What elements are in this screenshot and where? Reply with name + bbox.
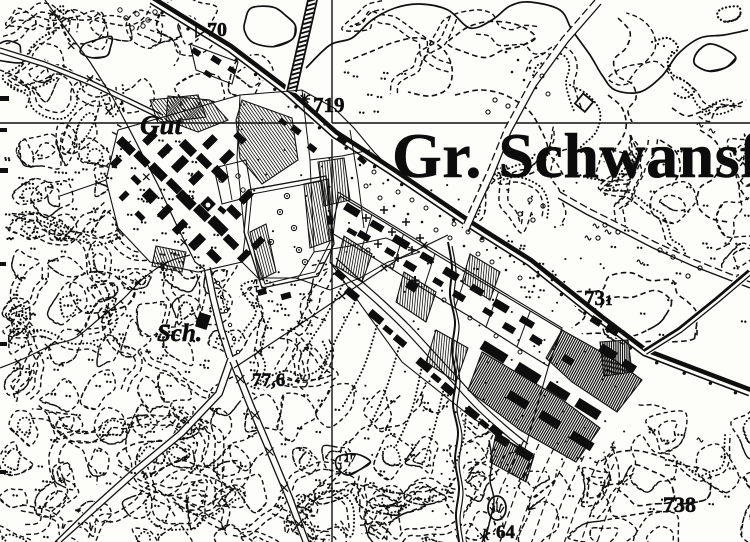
svg-text:17: 17 <box>344 451 356 465</box>
svg-text:64: 64 <box>496 522 516 542</box>
svg-text:k: k <box>482 527 490 542</box>
svg-text:70: 70 <box>207 19 227 41</box>
svg-text:719: 719 <box>313 93 345 117</box>
svg-text:Gr. Schwansf: Gr. Schwansf <box>392 120 750 191</box>
svg-text:77,6: 77,6 <box>252 370 285 391</box>
svg-text:Gut: Gut <box>140 110 184 140</box>
svg-text:Sch.: Sch. <box>157 320 202 347</box>
svg-text:738: 738 <box>663 492 696 517</box>
